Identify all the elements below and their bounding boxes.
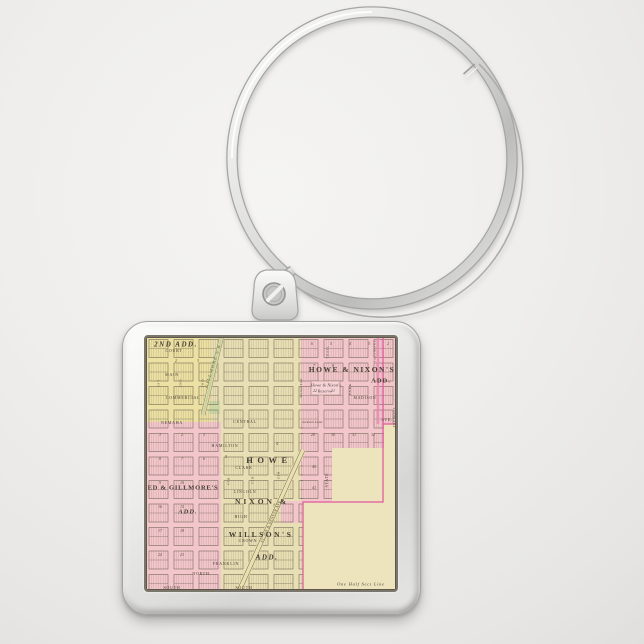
map-label: MAIN (165, 373, 179, 377)
block-number: 7 (181, 457, 183, 461)
map-label: SOUTH (235, 586, 252, 590)
block-number: 23 (180, 553, 184, 557)
map-label: HIGH (235, 515, 248, 519)
block-number: 18 (180, 529, 184, 533)
block-number: 3 (203, 433, 205, 437)
map-label: Jackson Lane (302, 420, 323, 424)
block-number: 24 (158, 553, 162, 557)
map-label: 1ST (157, 379, 160, 387)
ring-inner-wire (286, 64, 523, 317)
map-glass: 2ND ADD.HOWE & NIXON'SADD.Howe & Nixon's… (144, 335, 398, 592)
map-label: CROWN (239, 539, 258, 543)
map-label: 2ND ADD. (154, 342, 198, 349)
block-number: 29 (311, 433, 315, 437)
ring-gap-notch (464, 64, 475, 74)
map-label: Howe & Nixon's (311, 383, 341, 387)
pendant: 2ND ADD.HOWE & NIXON'SADD.Howe & Nixon's… (122, 321, 421, 615)
map-label: One Half Sect Line (337, 582, 385, 587)
map-label: CLARK (235, 466, 252, 470)
block-grid-north (146, 337, 396, 423)
block-number: 7 (313, 364, 315, 368)
block-number: 41 (312, 486, 316, 490)
map-label: 5TH (251, 476, 254, 484)
map-label: ADD. (371, 377, 391, 384)
block-number: 21 (331, 389, 335, 393)
block-number: 32 (371, 433, 375, 437)
map-label: PARK (348, 383, 352, 395)
map-label: STATE (325, 473, 329, 488)
block-number: 31 (352, 433, 356, 437)
block-number: 5 (225, 455, 227, 459)
block-number: 8 (332, 364, 334, 368)
map-label: Section Line (299, 378, 303, 397)
block-number: 16 (158, 505, 162, 509)
map-label: FRANKLIN (213, 562, 239, 566)
map-label: TRAIL (326, 345, 329, 358)
map-label: HAMILTON (212, 444, 239, 448)
map-label: ADD. (256, 555, 279, 562)
block-number: 6 (203, 457, 205, 461)
block-number: 30 (331, 433, 335, 437)
map-label: PASSMORE (373, 340, 376, 363)
map-label: 6TH (277, 471, 280, 479)
block-number: 17 (158, 529, 162, 533)
block-number: 5 (330, 342, 332, 346)
pendant-tab (252, 270, 298, 320)
map-label: 2ND (179, 379, 182, 388)
block-number: 3 (368, 342, 370, 346)
map-label: COURT (165, 349, 182, 353)
map-label: FREMONT (393, 407, 396, 428)
map-label: LINCOLN (234, 490, 257, 494)
map-label: MADISON (354, 396, 377, 400)
map-label: AVE. (381, 418, 392, 422)
keychain-product-photo: 2ND ADD.HOWE & NIXON'SADD.Howe & Nixon's… (0, 0, 644, 644)
block-number: 6 (311, 342, 313, 346)
block-number: 3 (197, 359, 199, 363)
block-number: 22 (313, 389, 317, 393)
map-label: HOWE & NIXON'S (309, 366, 395, 374)
block-number: 15 (180, 505, 184, 509)
block-number: 40 (312, 465, 316, 469)
map-label: CENTRAL (233, 420, 257, 424)
block-number: 2 (181, 433, 183, 437)
block-number: 8 (159, 457, 161, 461)
map-label: COMMERCIAL (166, 396, 201, 400)
block-number: 4 (276, 442, 278, 446)
block-number: 1 (159, 433, 161, 437)
block-number: 4 (349, 342, 351, 346)
map-label: NEMAHA (161, 421, 183, 425)
plat-map: 2ND ADD.HOWE & NIXON'SADD.Howe & Nixon's… (146, 337, 396, 590)
block-number: 2 (175, 359, 177, 363)
map-label: 4TH (227, 477, 230, 485)
map-label: NORTH (192, 572, 209, 576)
block-number: 2 (387, 342, 389, 346)
block-number: 9 (159, 481, 161, 485)
map-label: HOWE (246, 456, 291, 465)
map-label: SOUTH (163, 586, 180, 590)
block-number: 10 (180, 481, 184, 485)
